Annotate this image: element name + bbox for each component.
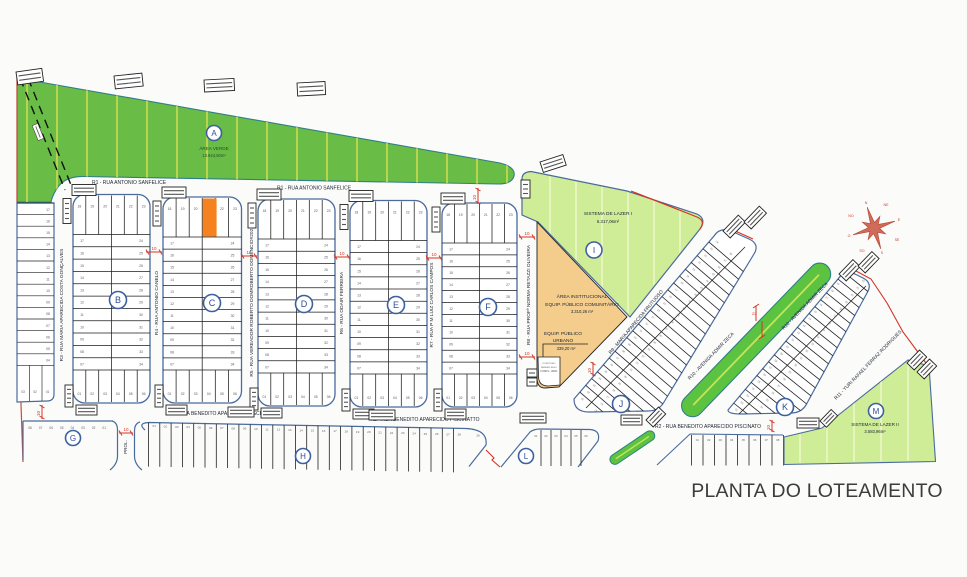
svg-text:03: 03 <box>380 396 384 400</box>
svg-text:09: 09 <box>265 341 269 345</box>
svg-text:M: M <box>873 407 880 416</box>
svg-text:19: 19 <box>367 211 371 215</box>
svg-text:31: 31 <box>139 325 143 329</box>
svg-text:17: 17 <box>80 239 84 243</box>
svg-text:07: 07 <box>39 426 43 430</box>
svg-text:E: E <box>393 300 399 310</box>
svg-text:04: 04 <box>207 392 211 396</box>
svg-text:16: 16 <box>170 254 174 258</box>
svg-text:21: 21 <box>116 205 120 209</box>
svg-text:07: 07 <box>80 362 84 366</box>
svg-text:01: 01 <box>102 426 106 430</box>
svg-text:12: 12 <box>265 305 269 309</box>
svg-text:F: F <box>485 302 491 312</box>
svg-text:06: 06 <box>233 392 237 396</box>
svg-text:14: 14 <box>299 428 303 432</box>
svg-text:24: 24 <box>231 242 235 246</box>
svg-text:28: 28 <box>416 294 420 298</box>
svg-text:01: 01 <box>696 438 700 442</box>
svg-text:17: 17 <box>449 247 453 251</box>
svg-text:10: 10 <box>524 231 530 236</box>
svg-text:05: 05 <box>129 392 133 396</box>
svg-text:R7 - RUA P M LUIZ CARLOS CAMP: R7 - RUA P M LUIZ CARLOS CAMPOS <box>429 263 435 348</box>
svg-text:03: 03 <box>21 390 25 394</box>
svg-text:33: 33 <box>416 354 420 358</box>
svg-text:06: 06 <box>142 392 146 396</box>
svg-text:08: 08 <box>28 426 32 430</box>
svg-text:12: 12 <box>357 306 361 310</box>
svg-text:NE: NE <box>884 203 890 207</box>
svg-text:06: 06 <box>46 335 50 339</box>
svg-text:07: 07 <box>170 362 174 366</box>
svg-text:05: 05 <box>742 438 746 442</box>
svg-text:10: 10 <box>36 411 41 417</box>
svg-text:07: 07 <box>220 426 224 430</box>
svg-text:01: 01 <box>46 390 50 394</box>
svg-text:09: 09 <box>449 343 453 347</box>
svg-text:13: 13 <box>170 290 174 294</box>
svg-text:31: 31 <box>416 330 420 334</box>
svg-text:07: 07 <box>265 365 269 369</box>
svg-text:11: 11 <box>449 319 453 323</box>
svg-text:07: 07 <box>357 366 361 370</box>
svg-text:27: 27 <box>139 276 143 280</box>
svg-text:10: 10 <box>254 427 258 431</box>
svg-text:02: 02 <box>181 392 185 396</box>
svg-text:10: 10 <box>46 289 50 293</box>
svg-text:06: 06 <box>584 434 588 438</box>
svg-text:03: 03 <box>175 425 179 429</box>
svg-text:01: 01 <box>78 392 82 396</box>
svg-text:05: 05 <box>314 395 318 399</box>
svg-text:26: 26 <box>506 271 510 275</box>
svg-text:15: 15 <box>170 266 174 270</box>
svg-text:23: 23 <box>401 431 405 435</box>
svg-text:22: 22 <box>220 207 224 211</box>
svg-text:10: 10 <box>151 246 157 251</box>
svg-text:01: 01 <box>534 434 538 438</box>
svg-text:23: 23 <box>419 211 423 215</box>
svg-text:04: 04 <box>393 396 397 400</box>
svg-text:06: 06 <box>327 395 331 399</box>
svg-text:28: 28 <box>231 290 235 294</box>
svg-text:10: 10 <box>357 330 361 334</box>
svg-text:01: 01 <box>446 396 450 400</box>
svg-text:16: 16 <box>46 219 50 223</box>
svg-text:06: 06 <box>419 396 423 400</box>
svg-text:04: 04 <box>46 359 50 363</box>
svg-text:15: 15 <box>311 429 315 433</box>
svg-text:07: 07 <box>765 438 769 442</box>
svg-text:03: 03 <box>81 426 85 430</box>
svg-text:29: 29 <box>324 305 328 309</box>
svg-text:26: 26 <box>324 268 328 272</box>
svg-text:18: 18 <box>355 211 359 215</box>
svg-text:29: 29 <box>139 301 143 305</box>
svg-text:25: 25 <box>324 256 328 260</box>
svg-text:28: 28 <box>324 292 328 296</box>
svg-text:12: 12 <box>80 301 84 305</box>
svg-text:RESERV. ELEV.: RESERV. ELEV. <box>541 367 557 369</box>
svg-text:09: 09 <box>357 342 361 346</box>
svg-text:08: 08 <box>231 426 235 430</box>
svg-text:17: 17 <box>170 242 174 246</box>
svg-text:11: 11 <box>80 313 84 317</box>
svg-text:09: 09 <box>46 301 50 305</box>
svg-text:03: 03 <box>194 392 198 396</box>
svg-text:R8 - RUA PROFª NORMA RETAZZI: R8 - RUA PROFª NORMA RETAZZI OLIVEIRA <box>526 244 532 345</box>
svg-text:22: 22 <box>752 311 757 316</box>
svg-text:24: 24 <box>139 239 143 243</box>
svg-text:18: 18 <box>263 209 267 213</box>
svg-text:16: 16 <box>322 429 326 433</box>
svg-text:20: 20 <box>367 430 371 434</box>
svg-text:EQUIP. PÚBLICO COMUNITÁRIO: EQUIP. PÚBLICO COMUNITÁRIO <box>545 301 619 308</box>
svg-text:R3 - RUA MARIA APARECIDA COSTA: R3 - RUA MARIA APARECIDA COSTA GONÇALVES <box>59 249 65 362</box>
svg-text:21: 21 <box>378 431 382 435</box>
svg-text:31: 31 <box>231 326 235 330</box>
svg-text:31: 31 <box>324 329 328 333</box>
svg-text:26: 26 <box>231 266 235 270</box>
svg-text:31: 31 <box>506 331 510 335</box>
svg-text:R2 - RUA BENEDITO APARECIDO PI: R2 - RUA BENEDITO APARECIDO PISCINATO <box>655 424 761 430</box>
svg-text:18: 18 <box>78 205 82 209</box>
svg-text:04: 04 <box>730 438 734 442</box>
svg-text:J: J <box>619 399 624 409</box>
svg-text:24: 24 <box>324 244 328 248</box>
svg-text:23: 23 <box>142 205 146 209</box>
svg-text:20: 20 <box>471 213 475 217</box>
svg-text:I: I <box>593 245 595 255</box>
svg-text:30: 30 <box>416 318 420 322</box>
svg-text:15: 15 <box>46 231 50 235</box>
svg-text:NO: NO <box>848 214 854 218</box>
svg-text:30: 30 <box>324 317 328 321</box>
svg-text:16: 16 <box>357 257 361 261</box>
svg-text:16: 16 <box>80 252 84 256</box>
svg-text:13: 13 <box>288 428 292 432</box>
svg-text:04: 04 <box>301 395 305 399</box>
svg-text:19: 19 <box>459 213 463 217</box>
svg-text:14: 14 <box>449 283 453 287</box>
svg-text:05: 05 <box>496 396 500 400</box>
svg-text:02: 02 <box>275 395 279 399</box>
svg-text:ÁREA INSTITUCIONAL: ÁREA INSTITUCIONAL <box>557 293 608 300</box>
svg-text:A: A <box>211 129 217 138</box>
svg-text:20: 20 <box>288 209 292 213</box>
svg-text:03: 03 <box>103 392 107 396</box>
svg-text:12: 12 <box>46 266 50 270</box>
svg-text:ÁREA VERDE: ÁREA VERDE <box>199 145 228 151</box>
svg-text:16: 16 <box>265 256 269 260</box>
svg-text:12: 12 <box>277 428 281 432</box>
svg-text:08: 08 <box>46 312 50 316</box>
svg-text:17: 17 <box>333 429 337 433</box>
svg-text:17: 17 <box>357 245 361 249</box>
svg-text:23: 23 <box>509 213 513 217</box>
svg-text:05: 05 <box>220 392 224 396</box>
svg-text:34: 34 <box>231 362 235 366</box>
svg-text:33: 33 <box>231 350 235 354</box>
svg-text:32: 32 <box>231 338 235 342</box>
svg-text:08: 08 <box>170 350 174 354</box>
svg-text:33: 33 <box>506 355 510 359</box>
svg-text:O: O <box>848 234 851 238</box>
svg-text:17: 17 <box>265 244 269 248</box>
svg-text:01: 01 <box>355 396 359 400</box>
svg-text:B: B <box>115 295 121 305</box>
svg-text:03: 03 <box>288 395 292 399</box>
svg-text:11: 11 <box>170 314 174 318</box>
svg-text:33: 33 <box>324 353 328 357</box>
svg-text:24: 24 <box>416 245 420 249</box>
svg-text:22: 22 <box>406 211 410 215</box>
svg-text:24: 24 <box>412 432 416 436</box>
svg-text:17: 17 <box>46 208 50 212</box>
svg-text:22: 22 <box>390 431 394 435</box>
svg-text:21: 21 <box>301 209 305 213</box>
svg-text:10: 10 <box>431 252 437 257</box>
svg-text:14: 14 <box>357 281 361 285</box>
svg-text:28: 28 <box>457 433 461 437</box>
svg-text:H: H <box>300 452 306 461</box>
svg-text:12: 12 <box>449 307 453 311</box>
svg-text:02: 02 <box>90 392 94 396</box>
svg-text:25: 25 <box>424 432 428 436</box>
svg-text:11: 11 <box>357 318 361 322</box>
svg-text:04: 04 <box>71 426 75 430</box>
svg-text:SO: SO <box>859 249 864 253</box>
svg-text:L: L <box>524 452 529 461</box>
svg-text:23: 23 <box>233 207 237 211</box>
svg-text:N: N <box>865 201 868 205</box>
svg-text:18: 18 <box>344 430 348 434</box>
svg-text:06: 06 <box>209 426 213 430</box>
svg-text:34: 34 <box>506 367 510 371</box>
svg-text:SISTEMA DE LAZER II: SISTEMA DE LAZER II <box>851 422 898 427</box>
svg-text:21: 21 <box>484 213 488 217</box>
svg-text:25: 25 <box>139 252 143 256</box>
svg-text:03: 03 <box>471 396 475 400</box>
svg-text:SISTEMA DE LAZER I: SISTEMA DE LAZER I <box>584 211 632 217</box>
svg-text:19: 19 <box>356 430 360 434</box>
svg-text:02: 02 <box>367 396 371 400</box>
svg-text:30: 30 <box>506 319 510 323</box>
svg-text:URBANO: URBANO <box>553 338 574 344</box>
svg-text:15: 15 <box>357 269 361 273</box>
svg-text:01: 01 <box>263 395 267 399</box>
svg-text:15: 15 <box>265 268 269 272</box>
svg-text:29: 29 <box>231 302 235 306</box>
svg-text:08: 08 <box>776 438 780 442</box>
svg-text:28: 28 <box>139 288 143 292</box>
svg-text:18: 18 <box>446 213 450 217</box>
svg-text:08: 08 <box>80 350 84 354</box>
svg-text:05: 05 <box>406 396 410 400</box>
svg-text:R4 - RUA ANTONIO CANELO: R4 - RUA ANTONIO CANELO <box>154 271 160 335</box>
svg-text:6.317,06m²: 6.317,06m² <box>597 219 620 224</box>
svg-text:02: 02 <box>707 438 711 442</box>
svg-text:14: 14 <box>80 276 84 280</box>
svg-text:SE: SE <box>895 238 900 242</box>
svg-text:10: 10 <box>587 368 592 374</box>
svg-text:16: 16 <box>449 259 453 263</box>
svg-text:19: 19 <box>90 205 94 209</box>
svg-text:04: 04 <box>564 434 568 438</box>
svg-text:13: 13 <box>265 292 269 296</box>
svg-text:04: 04 <box>484 396 488 400</box>
svg-text:C: C <box>209 298 216 308</box>
svg-text:32: 32 <box>139 338 143 342</box>
svg-text:02: 02 <box>33 390 37 394</box>
svg-text:10: 10 <box>265 329 269 333</box>
svg-text:10: 10 <box>766 425 771 431</box>
svg-text:24: 24 <box>506 247 510 251</box>
svg-text:G: G <box>70 434 76 443</box>
svg-text:25: 25 <box>416 257 420 261</box>
svg-text:R1 - RUA ANTONIO SANFELICE: R1 - RUA ANTONIO SANFELICE <box>277 186 352 192</box>
svg-text:04: 04 <box>116 392 120 396</box>
svg-text:10: 10 <box>524 351 530 356</box>
svg-text:07: 07 <box>46 324 50 328</box>
svg-text:10: 10 <box>449 331 453 335</box>
svg-text:01: 01 <box>168 392 172 396</box>
svg-text:02: 02 <box>459 396 463 400</box>
svg-text:10: 10 <box>472 195 477 201</box>
svg-text:03: 03 <box>554 434 558 438</box>
svg-text:33: 33 <box>139 350 143 354</box>
svg-text:14: 14 <box>170 278 174 282</box>
svg-text:27: 27 <box>324 280 328 284</box>
svg-text:27: 27 <box>446 432 450 436</box>
svg-text:PLANTA DO LOTEAMENTO: PLANTA DO LOTEAMENTO <box>691 480 942 502</box>
svg-text:05: 05 <box>574 434 578 438</box>
svg-text:26: 26 <box>416 269 420 273</box>
svg-text:05: 05 <box>46 347 50 351</box>
svg-text:30: 30 <box>139 313 143 317</box>
svg-text:26: 26 <box>139 264 143 268</box>
svg-text:02: 02 <box>544 434 548 438</box>
svg-text:30: 30 <box>231 314 235 318</box>
svg-text:15: 15 <box>80 264 84 268</box>
svg-text:25: 25 <box>506 259 510 263</box>
svg-text:COMPL. HIDR.: COMPL. HIDR. <box>540 369 558 373</box>
svg-text:13: 13 <box>80 288 84 292</box>
svg-text:K: K <box>782 402 788 412</box>
svg-text:R6 - RUA ODAIR FERREIRA: R6 - RUA ODAIR FERREIRA <box>339 271 345 334</box>
svg-text:19: 19 <box>181 207 185 211</box>
svg-text:27: 27 <box>506 283 510 287</box>
svg-text:05: 05 <box>60 426 64 430</box>
svg-text:10: 10 <box>80 325 84 329</box>
svg-text:07: 07 <box>449 367 453 371</box>
svg-text:D: D <box>301 299 308 309</box>
svg-text:20: 20 <box>194 207 198 211</box>
svg-text:03: 03 <box>719 438 723 442</box>
svg-text:08: 08 <box>449 355 453 359</box>
svg-text:11: 11 <box>265 317 269 321</box>
svg-text:15: 15 <box>449 271 453 275</box>
svg-text:22: 22 <box>314 209 318 213</box>
svg-text:10: 10 <box>123 427 129 432</box>
svg-text:14: 14 <box>46 243 50 247</box>
svg-text:339,20 m²: 339,20 m² <box>557 346 576 351</box>
svg-text:08: 08 <box>357 354 361 358</box>
svg-text:05: 05 <box>198 425 202 429</box>
svg-text:06: 06 <box>509 396 513 400</box>
svg-text:25: 25 <box>231 254 235 258</box>
svg-text:18: 18 <box>168 207 172 211</box>
svg-text:10: 10 <box>170 326 174 330</box>
svg-text:3.310,26 m²: 3.310,26 m² <box>571 309 594 314</box>
svg-text:19: 19 <box>275 209 279 213</box>
svg-text:29: 29 <box>506 307 510 311</box>
svg-text:22: 22 <box>129 205 133 209</box>
svg-text:3.583,96m²: 3.583,96m² <box>864 429 886 434</box>
svg-text:02: 02 <box>164 425 168 429</box>
svg-text:06: 06 <box>49 426 53 430</box>
svg-text:10: 10 <box>339 251 345 256</box>
svg-text:29: 29 <box>416 306 420 310</box>
svg-text:32: 32 <box>416 342 420 346</box>
svg-text:34: 34 <box>324 365 328 369</box>
svg-text:20: 20 <box>380 211 384 215</box>
svg-text:04: 04 <box>186 425 190 429</box>
svg-text:R1 - RUA ANTONIO SANFELICE: R1 - RUA ANTONIO SANFELICE <box>92 180 167 186</box>
svg-text:34: 34 <box>416 366 420 370</box>
svg-text:13: 13 <box>46 254 50 258</box>
svg-text:11: 11 <box>46 277 50 281</box>
svg-text:08: 08 <box>265 353 269 357</box>
svg-text:32: 32 <box>506 343 510 347</box>
svg-text:32: 32 <box>324 341 328 345</box>
svg-text:EQUIP. PÚBLICO: EQUIP. PÚBLICO <box>544 330 582 337</box>
svg-text:12: 12 <box>170 302 174 306</box>
svg-text:20: 20 <box>103 205 107 209</box>
svg-text:PROL.: PROL. <box>123 440 128 454</box>
svg-text:30: 30 <box>476 434 480 438</box>
svg-text:13: 13 <box>449 295 453 299</box>
svg-text:22: 22 <box>496 213 500 217</box>
svg-text:26: 26 <box>435 432 439 436</box>
svg-text:06: 06 <box>753 438 757 442</box>
svg-text:13: 13 <box>357 294 361 298</box>
svg-text:02: 02 <box>92 426 96 430</box>
svg-text:10: 10 <box>246 250 252 255</box>
svg-text:27: 27 <box>416 281 420 285</box>
svg-text:28: 28 <box>506 295 510 299</box>
svg-text:09: 09 <box>243 427 247 431</box>
svg-text:23: 23 <box>327 209 331 213</box>
svg-text:11: 11 <box>265 427 268 431</box>
svg-text:09: 09 <box>80 338 84 342</box>
svg-text:27: 27 <box>231 278 235 282</box>
svg-text:34: 34 <box>139 362 143 366</box>
svg-text:14: 14 <box>265 280 269 284</box>
svg-text:13.944,50m²: 13.944,50m² <box>202 153 226 158</box>
svg-text:09: 09 <box>170 338 174 342</box>
svg-text:21: 21 <box>393 211 397 215</box>
svg-text:PV/FUTURO: PV/FUTURO <box>543 363 556 365</box>
svg-text:01: 01 <box>152 424 156 428</box>
